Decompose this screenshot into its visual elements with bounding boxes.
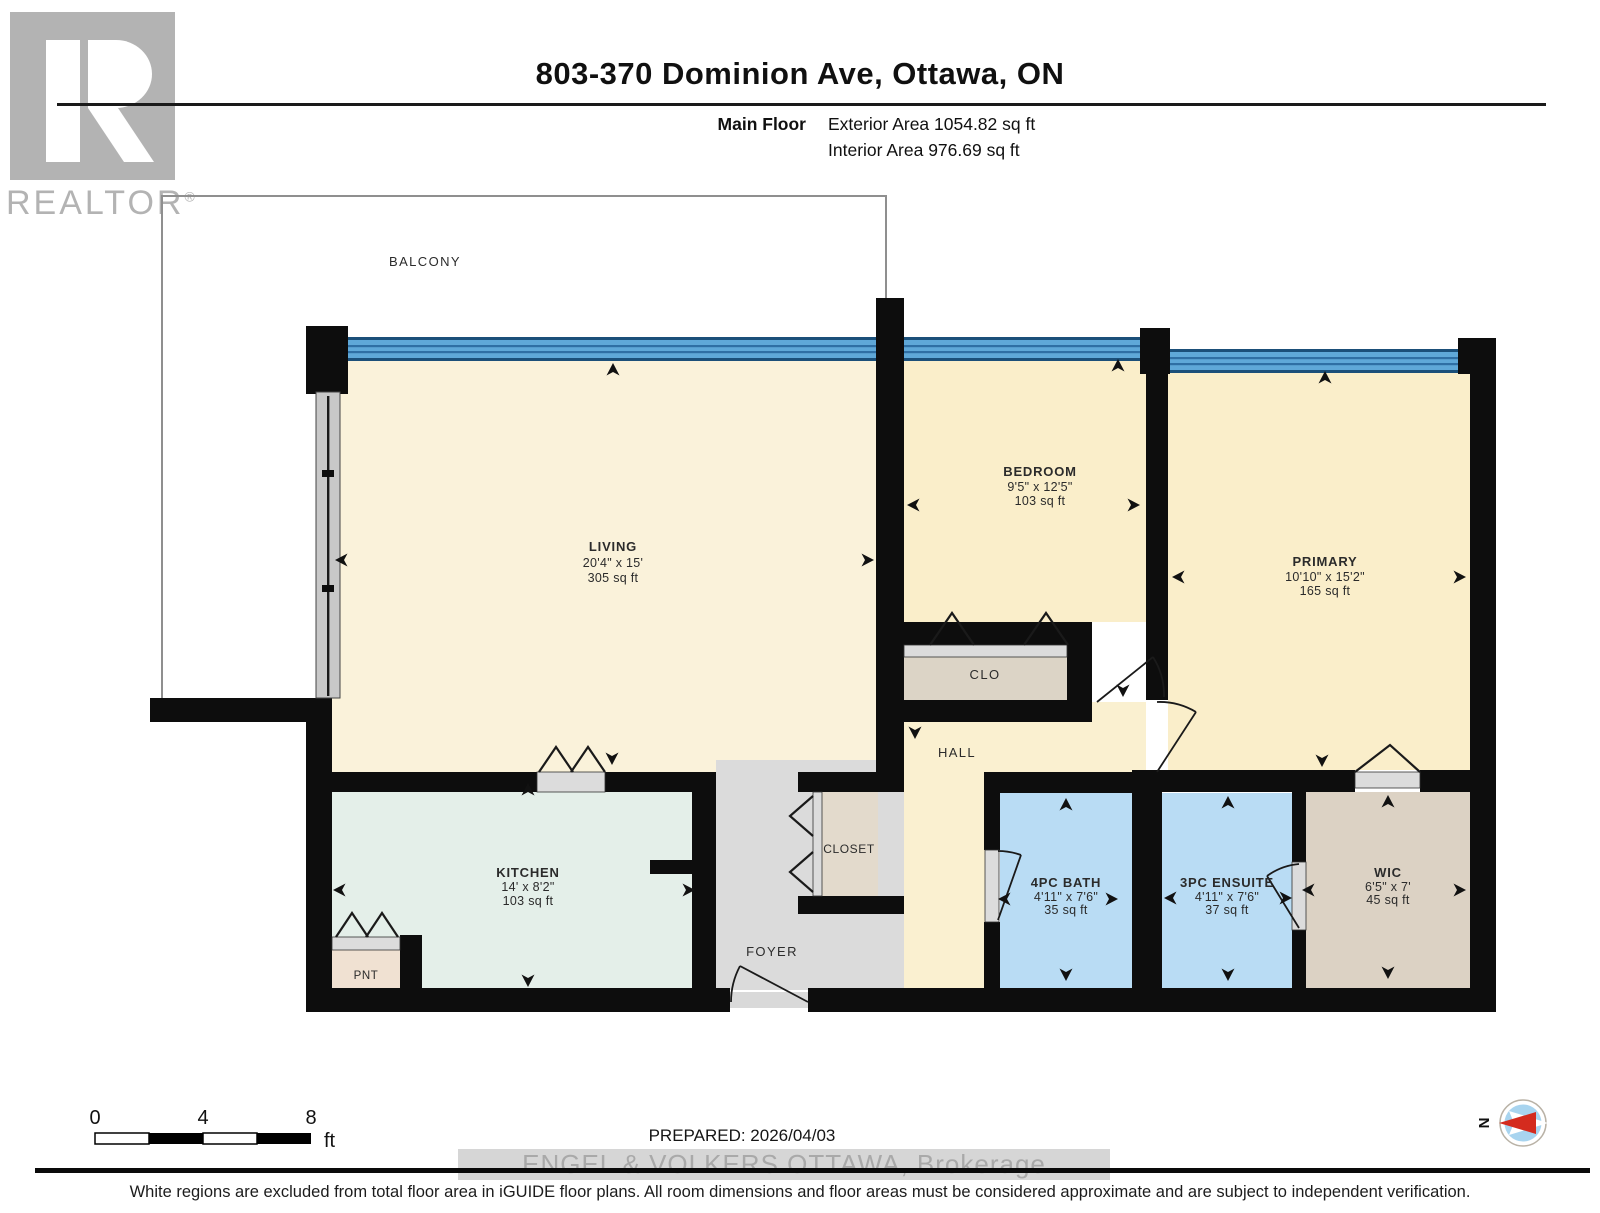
living-window — [348, 337, 876, 361]
clo-label: CLO — [970, 667, 1001, 682]
compass-icon: N — [1476, 1100, 1548, 1146]
entry-threshold — [730, 992, 808, 1008]
primary-window — [1170, 349, 1458, 373]
closet-label: CLOSET — [823, 842, 875, 856]
pantry-floor — [332, 950, 400, 988]
bedroom-window — [904, 337, 1140, 361]
scale-tick-8: 8 — [305, 1107, 316, 1129]
kitchen-label: KITCHEN14' x 8'2"103 sq ft — [496, 865, 559, 908]
compass-north-label: N — [1476, 1118, 1493, 1129]
scale-bar: 0 4 8 ft — [89, 1107, 335, 1152]
prepared-date: PREPARED: 2026/04/03 — [442, 1126, 1042, 1146]
hall-label: HALL — [938, 745, 976, 760]
scale-unit: ft — [324, 1130, 336, 1152]
disclaimer-text: White regions are excluded from total fl… — [0, 1183, 1600, 1202]
pnt-label: PNT — [354, 970, 379, 982]
brokerage-watermark: ENGEL & VOLKERS OTTAWA, Brokerage — [458, 1149, 1110, 1180]
scale-tick-4: 4 — [197, 1107, 208, 1129]
balcony-glass-door — [316, 392, 340, 698]
living-label: LIVING20'4" x 15'305 sq ft — [583, 539, 643, 585]
floor-plan-svg: BALCONY LIVING20'4" x 15'305 sq ft BEDRO… — [0, 0, 1600, 1213]
scale-tick-0: 0 — [89, 1107, 100, 1129]
foyer-label: FOYER — [746, 944, 798, 959]
balcony-label: BALCONY — [389, 254, 461, 269]
floor-plan-page: REALTOR® 803-370 Dominion Ave, Ottawa, O… — [0, 0, 1600, 1213]
footer-rule — [35, 1168, 1590, 1173]
